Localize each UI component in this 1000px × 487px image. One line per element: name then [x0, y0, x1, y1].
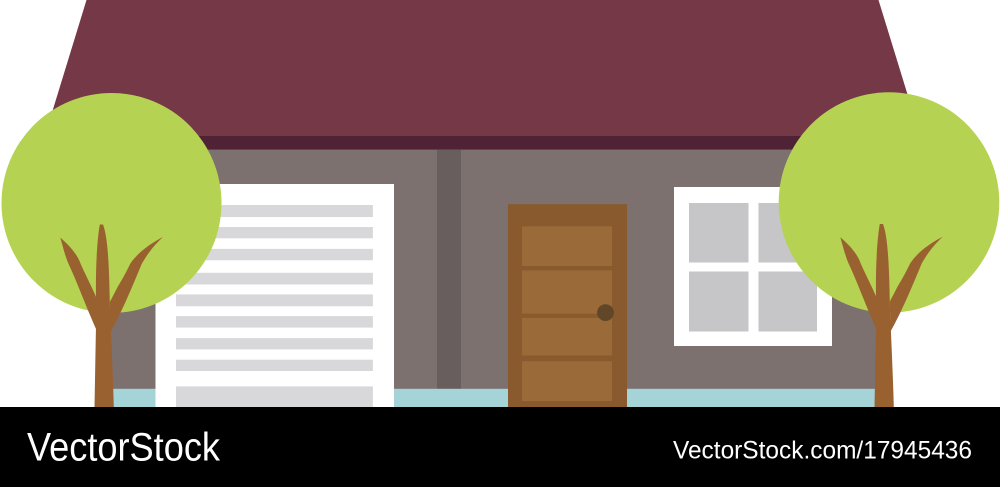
- svg-text:VectorStock: VectorStock: [27, 426, 221, 470]
- svg-text:VectorStock.com/17945436: VectorStock.com/17945436: [673, 437, 972, 465]
